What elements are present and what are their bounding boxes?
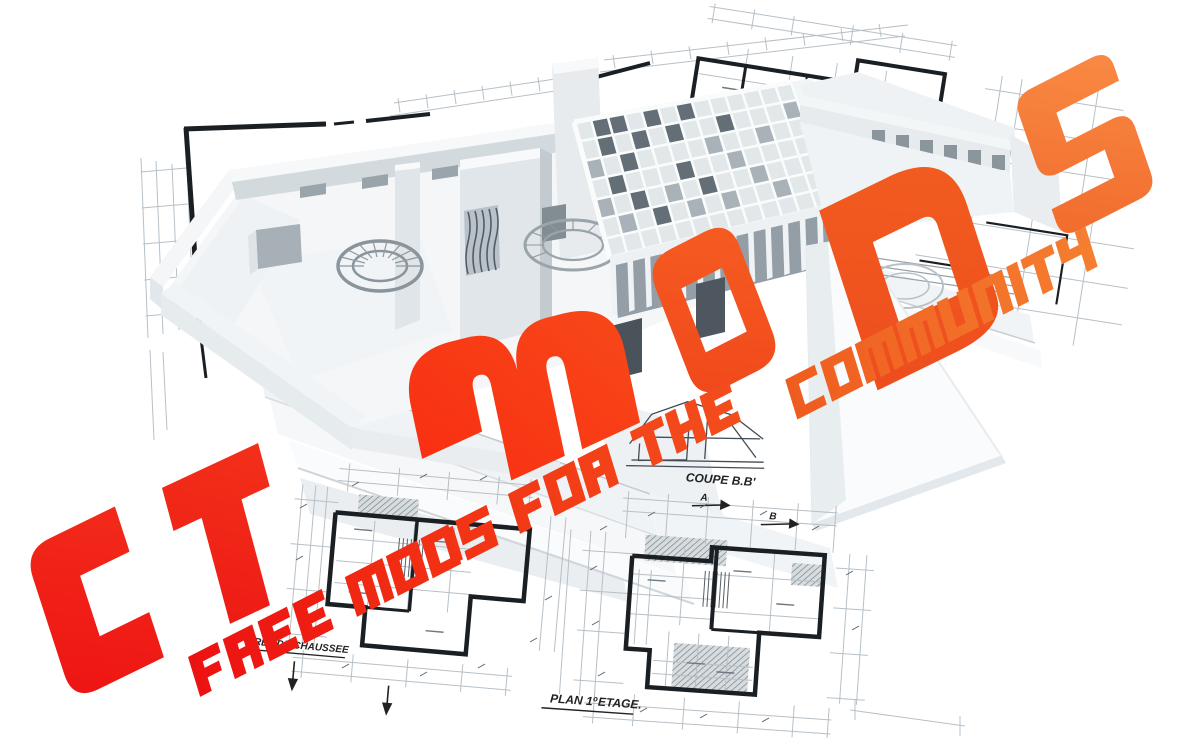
svg-text:B: B — [769, 511, 777, 522]
svg-text:A: A — [699, 492, 708, 504]
